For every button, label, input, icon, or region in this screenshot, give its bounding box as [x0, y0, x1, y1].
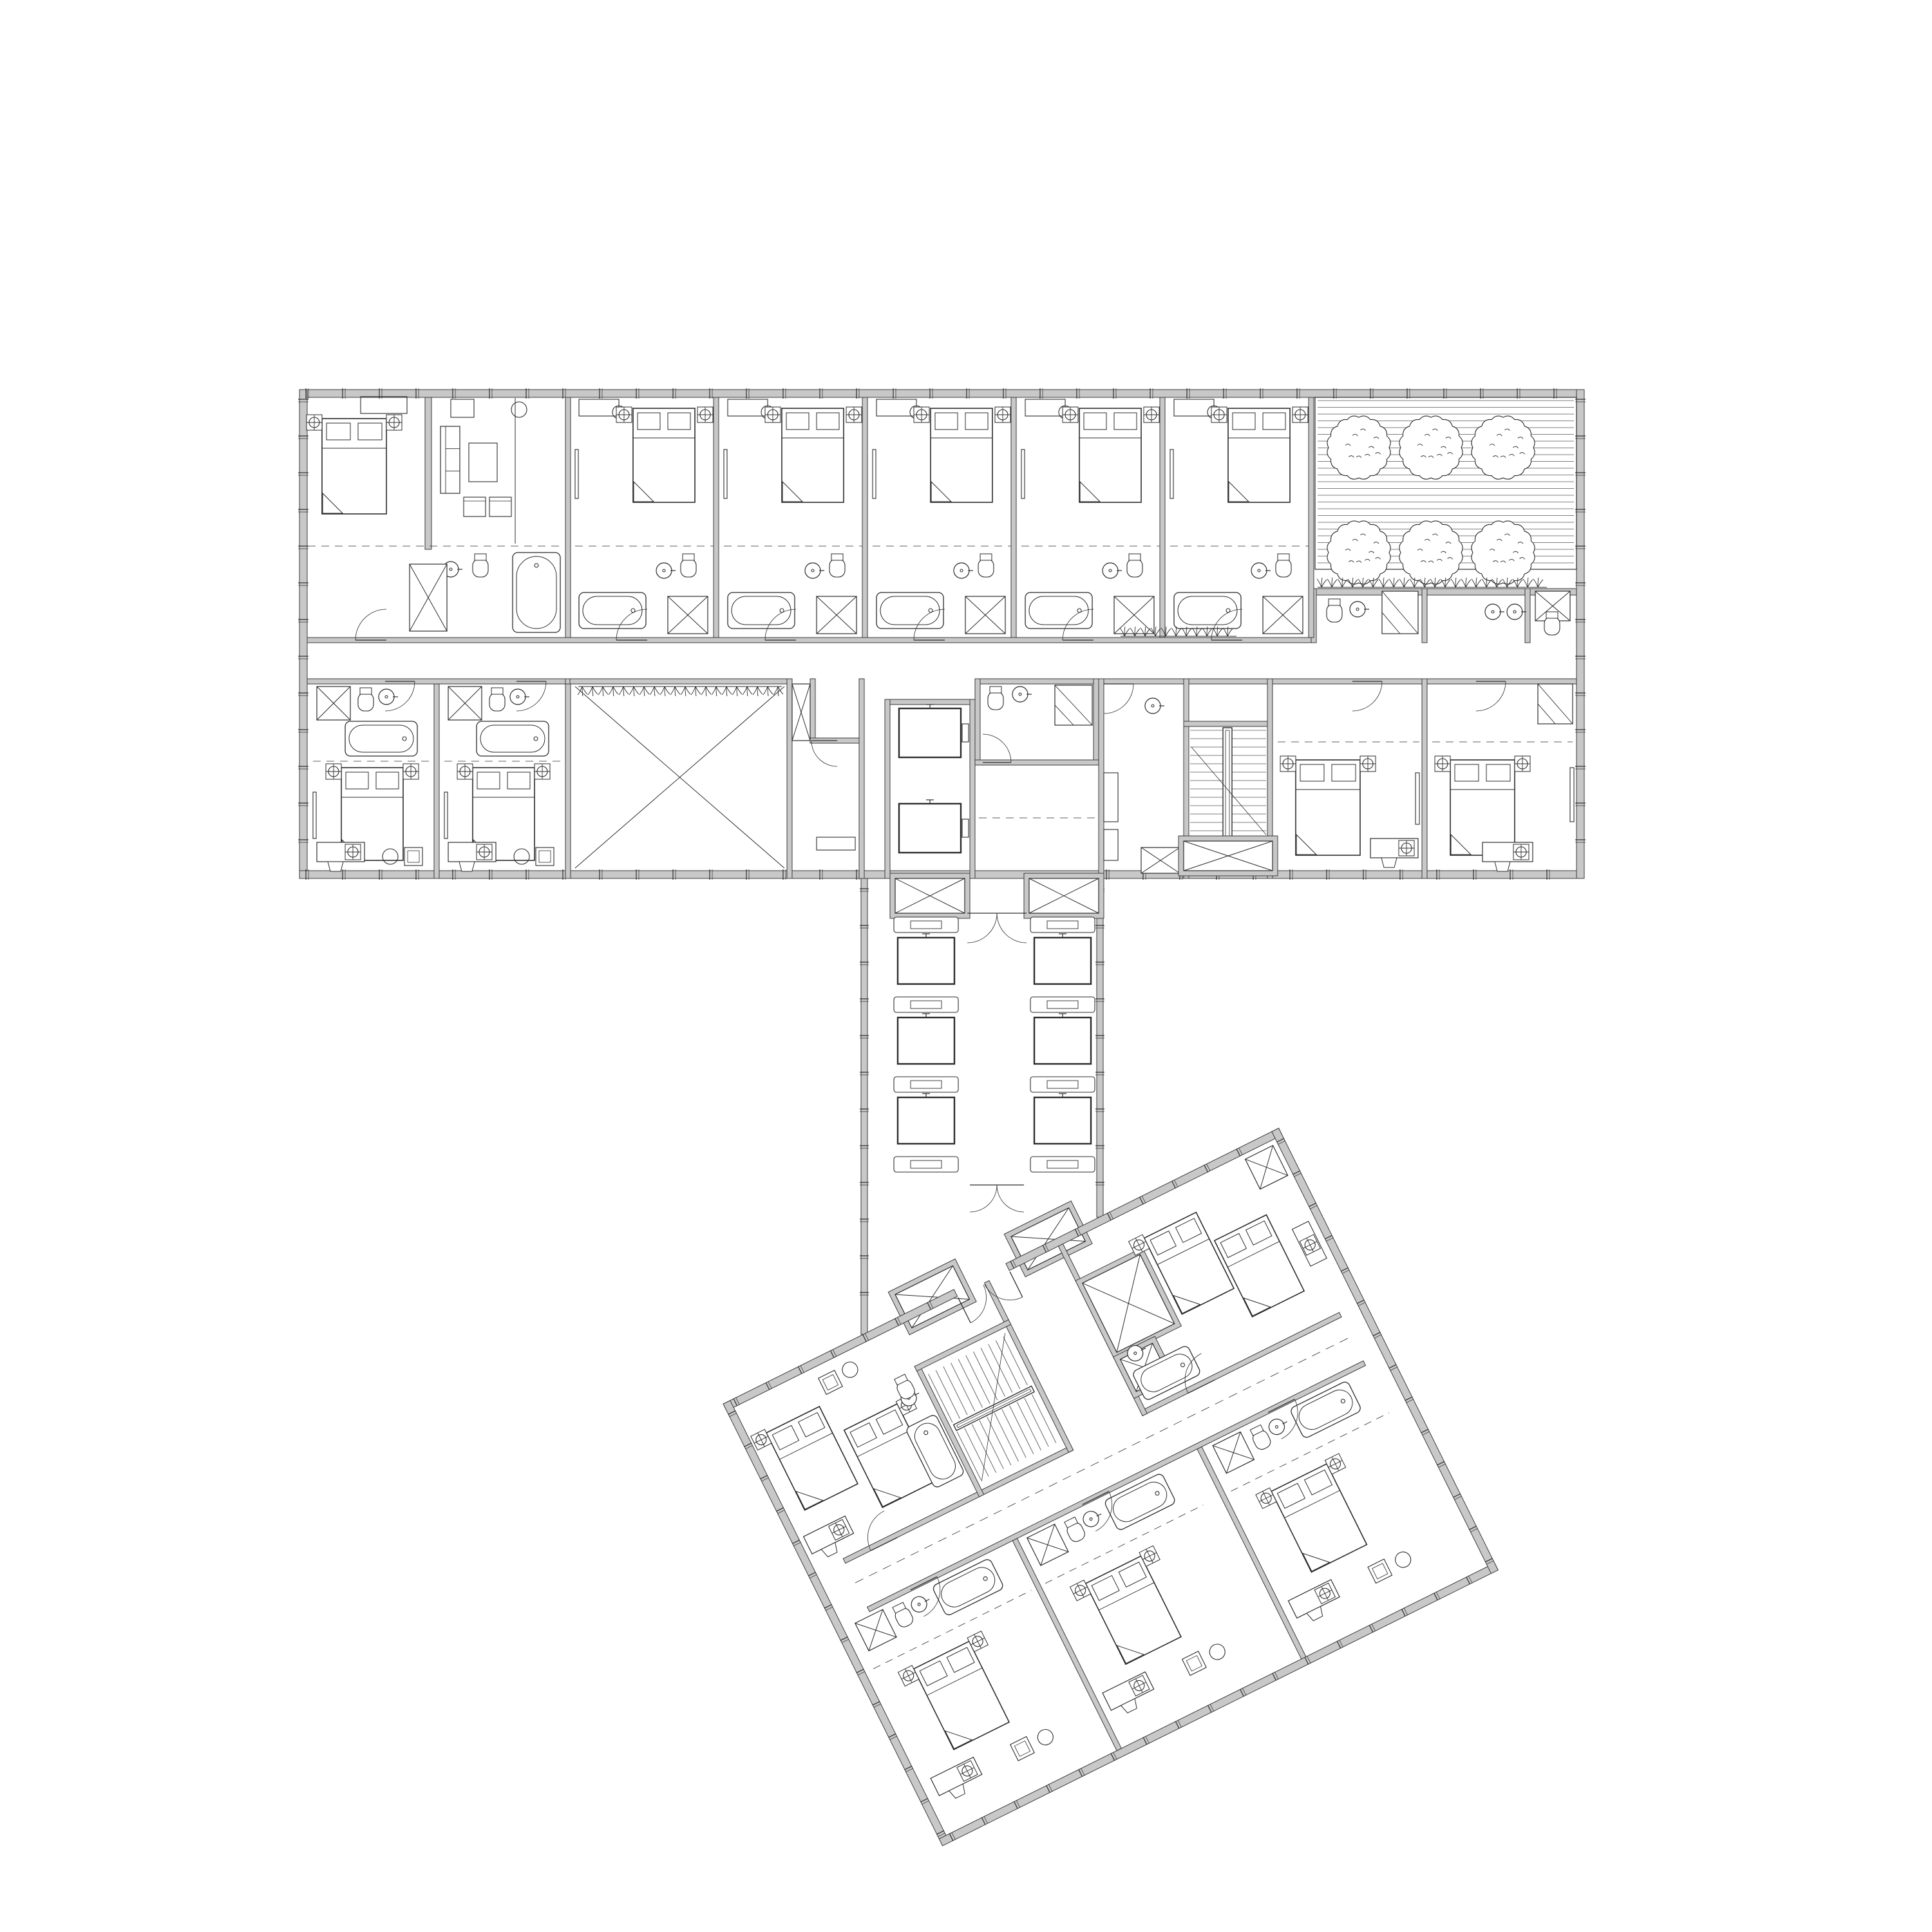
bar-outer	[894, 997, 958, 1012]
party-wall	[565, 684, 571, 878]
sconce	[616, 407, 632, 422]
sconce	[1211, 407, 1227, 422]
sconce	[386, 415, 402, 430]
bed	[931, 408, 992, 502]
wc-tank	[475, 554, 486, 560]
sconce	[1435, 756, 1450, 772]
tub-outer	[728, 592, 795, 629]
shower	[1538, 684, 1573, 724]
car-box	[899, 708, 961, 757]
sconce	[535, 764, 550, 779]
elevator-car	[899, 800, 961, 853]
elevator-car	[899, 705, 961, 757]
service-wall-left	[1099, 679, 1104, 878]
desk-chair	[328, 862, 343, 871]
bed	[1228, 408, 1290, 502]
bar-outer	[1030, 917, 1095, 933]
toilet	[1276, 554, 1291, 577]
bed	[1450, 760, 1515, 855]
bar-outer	[1030, 1157, 1095, 1172]
desk-chair	[459, 862, 475, 871]
toilet	[489, 688, 505, 711]
sink-basin	[1350, 601, 1365, 617]
bar-outer	[894, 917, 958, 933]
connector-wall-left	[861, 878, 867, 1334]
suite-armchair	[489, 497, 511, 516]
floor-plan	[0, 0, 1932, 1932]
bed-frame	[1079, 408, 1141, 502]
sconce	[1360, 756, 1376, 772]
stair-rail	[1223, 728, 1232, 841]
ottoman-outer	[536, 848, 554, 866]
bathtub	[728, 592, 795, 629]
paper-background	[0, 0, 1932, 1932]
lift-shaft-top	[885, 699, 975, 705]
wc-bowl	[358, 693, 374, 711]
bar-outer	[894, 1157, 958, 1172]
wc-wall-top	[975, 679, 1099, 684]
tub-outer	[1174, 592, 1241, 629]
ottoman-outer	[404, 848, 422, 866]
bathtub	[876, 592, 943, 629]
suite-wardrobe-wall	[425, 397, 431, 549]
bar-outer	[1030, 1077, 1095, 1092]
wc-tank	[1329, 599, 1340, 605]
wc-bowl	[473, 559, 488, 577]
wc-bowl	[1127, 559, 1142, 577]
elevator-door-unit	[1030, 997, 1095, 1012]
lift-shaft-left	[885, 699, 890, 878]
bed	[633, 408, 695, 502]
sink-basin	[1485, 604, 1501, 620]
wc-bowl	[829, 559, 845, 577]
tub-outer	[513, 553, 560, 632]
elevator-door-unit	[1030, 1157, 1095, 1172]
sconce	[697, 407, 713, 422]
shaft-closet	[448, 687, 482, 720]
elevator-door-unit	[894, 997, 958, 1012]
bed	[1079, 408, 1141, 502]
sconce	[846, 407, 862, 422]
lift-shaft-right	[970, 699, 975, 878]
party-wall	[714, 397, 719, 638]
elevator-car	[898, 934, 954, 984]
shaft-closet	[1263, 596, 1303, 634]
shaft-closet	[965, 596, 1005, 634]
toilet	[1127, 554, 1142, 577]
toilet	[988, 687, 1003, 710]
suite-toilet	[473, 554, 488, 577]
bed-frame	[1296, 760, 1360, 855]
suite-bathtub	[513, 553, 560, 632]
party-wall	[434, 684, 439, 878]
void-wall-top	[570, 679, 792, 684]
elevator-door-unit	[1030, 917, 1095, 933]
desk-chair	[1381, 858, 1397, 867]
stair-shaft	[1179, 836, 1278, 876]
suite-party-wall	[565, 397, 571, 638]
sconce	[326, 764, 341, 779]
outer-wall-left	[299, 390, 307, 878]
car-box	[1034, 1097, 1091, 1144]
wc-tank	[360, 688, 372, 694]
wc-tank	[831, 554, 843, 560]
bed	[782, 408, 844, 502]
toilet	[978, 554, 994, 577]
sconce	[1063, 407, 1078, 422]
sconce	[995, 407, 1010, 422]
wc-tank	[491, 688, 503, 694]
bar-outer	[894, 1077, 958, 1092]
elevator-door-unit	[894, 1157, 958, 1172]
party-wall-r1-r2	[1422, 679, 1427, 878]
sconce	[403, 764, 419, 779]
sink-basin	[1507, 604, 1522, 620]
toilet	[358, 688, 374, 711]
outer-wall-right	[1577, 390, 1584, 878]
floor-plan-svg	[0, 0, 1932, 1932]
bathtub	[1025, 592, 1092, 629]
wc-bowl	[489, 693, 505, 711]
desk-lamp	[477, 844, 492, 860]
bed-frame	[931, 408, 992, 502]
wc-tank	[990, 687, 1001, 693]
tub-outer	[876, 592, 943, 629]
bed-frame	[322, 419, 386, 514]
duct-shaft	[1024, 873, 1104, 918]
tub-outer	[579, 592, 646, 629]
party-wall	[1011, 397, 1016, 638]
wc-bowl	[988, 692, 1003, 710]
bed	[1296, 760, 1360, 855]
wc-wall-left	[975, 679, 980, 765]
sink-basin	[379, 689, 394, 705]
car-box	[898, 1018, 954, 1064]
shaft-closet	[317, 687, 350, 720]
elevator-car	[898, 1094, 954, 1144]
sink-basin	[1145, 698, 1160, 714]
wc-wall-right	[1094, 679, 1099, 765]
chair-frame	[464, 497, 486, 516]
party-wall	[1309, 397, 1314, 638]
desk-lamp	[345, 844, 361, 860]
sink-basin	[805, 563, 820, 578]
elevator-car	[1034, 1094, 1091, 1144]
sink-basin	[1251, 563, 1267, 578]
shower	[1382, 591, 1418, 634]
void-wall-right	[787, 679, 792, 878]
tub-outer	[1025, 592, 1092, 629]
elevator-car	[1034, 1014, 1091, 1064]
bar-outer	[1030, 997, 1095, 1012]
bed-frame	[1450, 760, 1515, 855]
wc-tank	[980, 554, 992, 560]
sconce	[1515, 756, 1530, 772]
desk-chair	[1495, 862, 1510, 871]
sconce	[1293, 407, 1308, 422]
wc-tank	[1129, 554, 1141, 560]
bathtub	[477, 721, 549, 756]
wc-bowl	[1327, 604, 1342, 622]
sconce	[1144, 407, 1159, 422]
car-box	[898, 1097, 954, 1144]
elevator-car	[1034, 934, 1091, 984]
sink-basin	[1012, 687, 1028, 702]
duct-shaft	[792, 684, 810, 741]
sconce	[307, 415, 322, 430]
duct-shaft	[890, 873, 970, 918]
wc-bowl	[1544, 617, 1560, 635]
suite-bed	[322, 419, 386, 514]
toilet	[1544, 612, 1560, 635]
toilet	[1327, 599, 1342, 622]
wc-tank	[683, 554, 694, 560]
utility-wall-right	[859, 679, 864, 878]
sink-basin	[954, 563, 969, 578]
bath-wall-b	[1422, 589, 1427, 643]
sconce	[457, 764, 473, 779]
sconce	[914, 407, 929, 422]
bed-frame	[1228, 408, 1290, 502]
ottoman	[404, 848, 422, 866]
car-box	[898, 938, 954, 984]
chair-frame	[489, 497, 511, 516]
wc-bowl	[978, 559, 994, 577]
suite-closet	[410, 564, 447, 631]
suite-armchair	[464, 497, 486, 516]
sconce	[1280, 756, 1296, 772]
bathtub	[579, 592, 646, 629]
wc-tank	[1278, 554, 1289, 560]
suite-sofa	[440, 426, 460, 493]
bath-wall-c	[1525, 589, 1530, 643]
toilet	[681, 554, 696, 577]
car-box	[1034, 1018, 1091, 1064]
duct-shaft	[1141, 848, 1180, 873]
wc-bowl	[1276, 559, 1291, 577]
desk-lamp	[1513, 844, 1529, 860]
shower	[1055, 685, 1092, 725]
sofa-frame	[440, 426, 460, 493]
stair-wall-top	[1184, 721, 1273, 726]
desk-lamp	[1399, 840, 1414, 856]
page	[0, 0, 1932, 1932]
bed-frame	[782, 408, 844, 502]
wc-tank	[1546, 612, 1558, 618]
elevator-door-unit	[1030, 1077, 1095, 1092]
wc-bowl	[681, 559, 696, 577]
elevator-door-unit	[894, 917, 958, 933]
bed-frame	[633, 408, 695, 502]
party-wall	[1160, 397, 1165, 638]
car-box	[899, 804, 961, 853]
ottoman	[536, 848, 554, 866]
sconce	[765, 407, 781, 422]
shaft-closet	[817, 596, 857, 634]
elevator-door-unit	[894, 1077, 958, 1092]
car-box	[1034, 938, 1091, 984]
shaft-strip-wall	[810, 679, 815, 743]
sink-basin	[656, 563, 672, 578]
bathtub	[1174, 592, 1241, 629]
corridor-wall-top	[307, 638, 1315, 643]
bathtub	[345, 721, 417, 756]
toilet	[829, 554, 845, 577]
sink-basin	[510, 689, 526, 705]
elevator-car	[898, 1014, 954, 1064]
party-wall	[862, 397, 867, 638]
sink-basin	[1103, 563, 1118, 578]
connector-wall-right	[1097, 878, 1103, 1217]
shaft-closet	[668, 596, 708, 634]
